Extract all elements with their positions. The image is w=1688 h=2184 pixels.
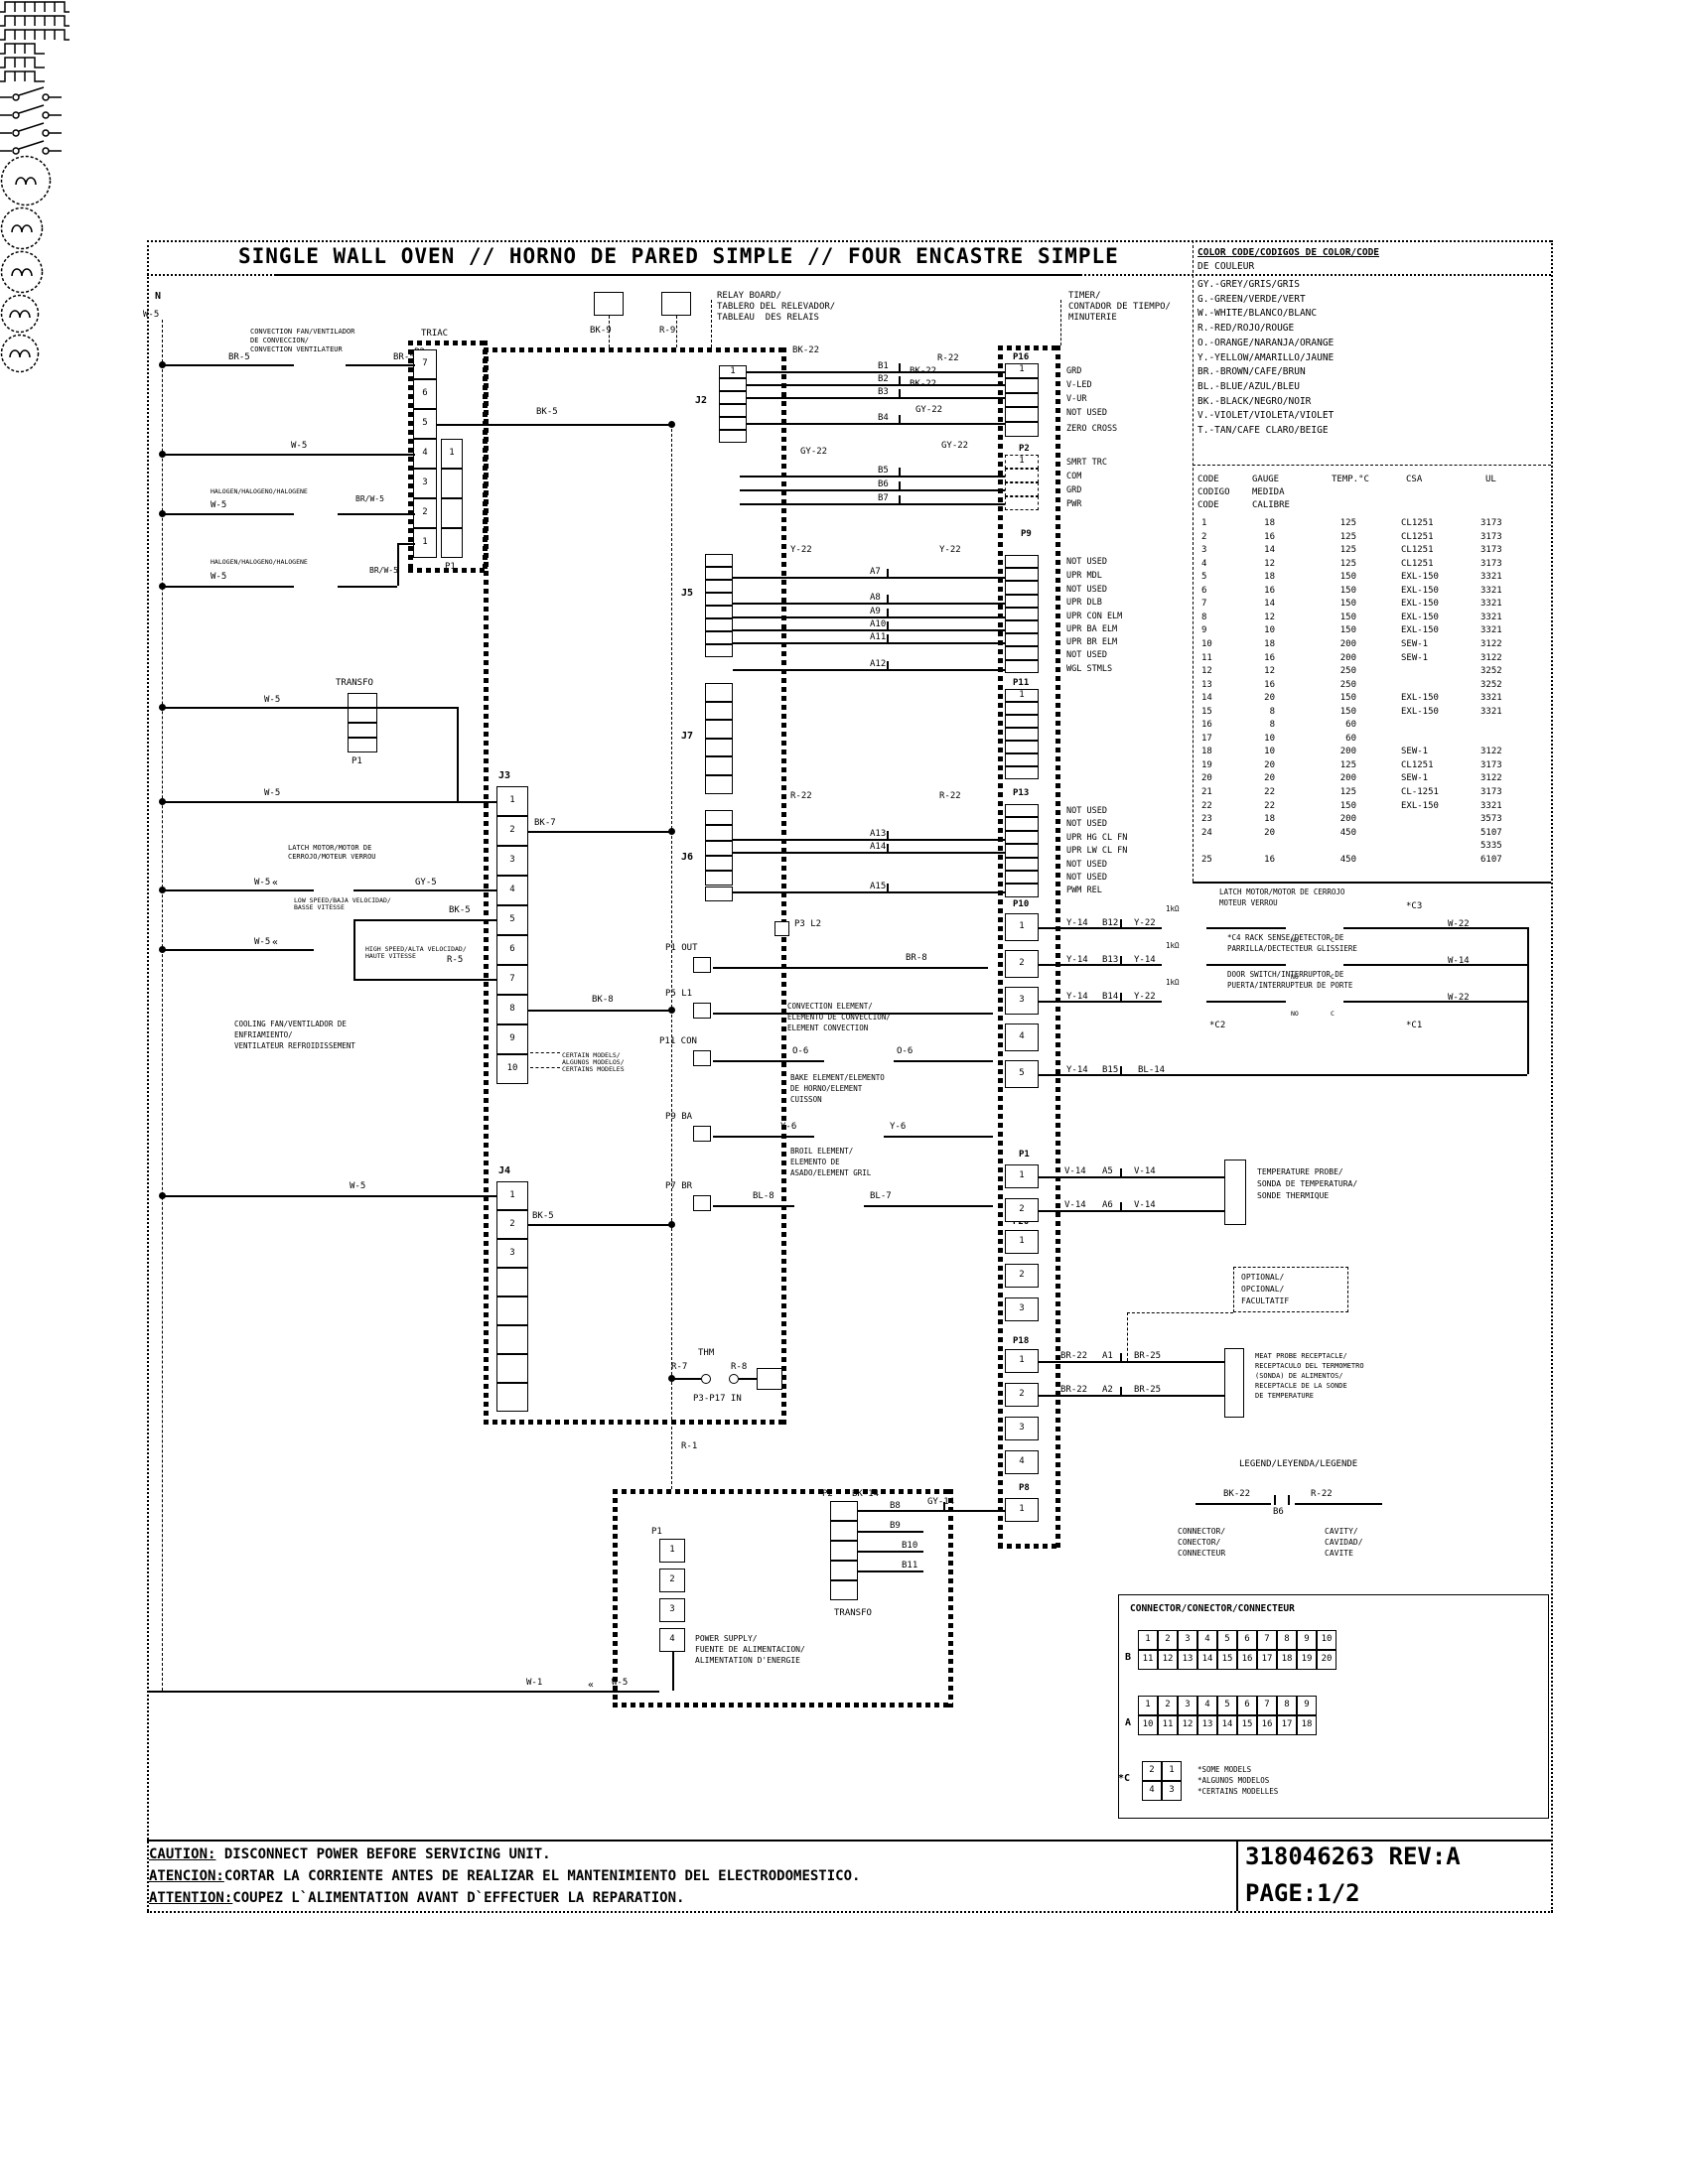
wire [858, 1531, 923, 1533]
label-a9: A9 [870, 607, 881, 616]
label-r1: R-1 [681, 1441, 697, 1451]
connector-p9-cell [1005, 620, 1039, 633]
label-p11con: P11 CON [659, 1036, 697, 1046]
label-ch1: « [272, 878, 278, 889]
board-border [998, 345, 1003, 1549]
label-b9: B9 [890, 1521, 901, 1531]
gauge-cell: 2 [1201, 532, 1231, 542]
gauge-cell: 13 [1201, 680, 1231, 690]
junction-dot [668, 1375, 675, 1382]
label-broil3: ASADO/ELEMENT GRIL [790, 1169, 871, 1178]
wire [162, 320, 163, 1691]
cavity-tick [899, 481, 901, 490]
connector-p9-cell [1005, 568, 1039, 581]
outline-box [693, 1050, 711, 1066]
timer-p2-pin-label: GRD [1066, 486, 1081, 496]
cavity-tick [899, 389, 901, 398]
cavity-tick [943, 1502, 945, 1511]
label-bake3: CUISSON [790, 1096, 822, 1105]
label-cc1: C [1331, 937, 1335, 944]
connector-j6-cell [705, 810, 733, 825]
caution-text-es: CORTAR LA CORRIENTE ANTES DE REALIZAR EL… [224, 1868, 861, 1884]
gauge-cell: 16 [1249, 680, 1275, 690]
label-o6b: O-6 [897, 1046, 913, 1056]
wire [1206, 1001, 1286, 1003]
connector-p10-cell: 2 [1005, 950, 1039, 978]
timer-p9-pin-label: UPR BR ELM [1066, 638, 1117, 648]
connector-p18-cell: 4 [1005, 1450, 1039, 1474]
wire [739, 1378, 757, 1380]
connector-j4-cell: 3 [496, 1239, 528, 1268]
color-code-entry: R.-RED/ROJO/ROUGE [1197, 324, 1294, 335]
junction-dot [668, 1221, 675, 1228]
gauge-cell: 150 [1321, 707, 1356, 717]
connector-j5-cell [705, 554, 733, 567]
timer-p13-pin-label: UPR HG CL FN [1066, 834, 1127, 844]
gauge-cell: 3173 [1480, 760, 1520, 770]
label-pow1: POWER SUPPLY/ [695, 1634, 758, 1643]
grid-b1-cell: 4 [1197, 1630, 1217, 1650]
timer-p13-pin-label: NOT USED [1066, 874, 1107, 884]
gauge-header3: CALIBRE [1252, 500, 1290, 510]
cavity-tick [1120, 1387, 1122, 1396]
cavity-tick [887, 884, 889, 892]
connector-j3-cell: 1 [496, 786, 528, 816]
connector-p9-cell [1005, 581, 1039, 594]
wire [1343, 1001, 1527, 1003]
gauge-cell: 15 [1201, 707, 1231, 717]
gauge-cell: 200 [1321, 773, 1356, 783]
wire [397, 543, 399, 586]
connector-p11-cell: 1 [1005, 689, 1039, 702]
label-n: N [155, 291, 161, 303]
color-code-entry: Y.-YELLOW/AMARILLO/JAUNE [1197, 353, 1334, 364]
label-conv3: ELEMENT CONVECTION [787, 1024, 868, 1033]
label-latchm1: LATCH MOTOR/MOTOR DE CERROJO [1219, 888, 1344, 897]
grid-c-label: *C [1118, 1773, 1130, 1785]
grid-b1-cell: 8 [1277, 1630, 1297, 1650]
label-j7: J7 [681, 731, 693, 743]
grid-a2-cell: 14 [1217, 1715, 1237, 1735]
wire [162, 801, 496, 803]
timer-p2-pin-label: SMRT TRC [1066, 459, 1107, 469]
label-timer1: TIMER/ [1068, 291, 1101, 301]
connector-j4-cell [496, 1383, 528, 1412]
border-line [1193, 240, 1194, 882]
connector-p16-cell: 1 [1005, 363, 1039, 378]
connector-p10-cell: 5 [1005, 1060, 1039, 1088]
gauge-cell: CL1251 [1401, 559, 1465, 569]
wire [733, 629, 1005, 631]
label-b1: B1 [878, 361, 889, 371]
label-p16: P16 [1013, 352, 1029, 362]
timer-p9-pin-label: NOT USED [1066, 558, 1107, 568]
color-code-entry: T.-TAN/CAFE CLARO/BEIGE [1197, 426, 1329, 437]
connector-triac-cell: 5 [413, 409, 437, 439]
gauge-cell: 3321 [1480, 693, 1520, 703]
timer-p9-pin-label: WGL STMLS [1066, 665, 1112, 675]
gauge-cell: 6107 [1480, 855, 1520, 865]
gauge-cell: CL1251 [1401, 760, 1465, 770]
caution-word-en: CAUTION: [149, 1846, 215, 1862]
connector-j3-cell: 5 [496, 905, 528, 935]
cavity-tick [1120, 1066, 1122, 1075]
connector-p9-cell [1005, 660, 1039, 673]
gauge-cell: 12 [1249, 559, 1275, 569]
connector-p13-cell [1005, 858, 1039, 871]
cavity-tick [899, 495, 901, 504]
gauge-cell: 3173 [1480, 545, 1520, 555]
junction-dot [159, 1192, 166, 1199]
wire [162, 1195, 496, 1197]
grid-b2-cell: 16 [1237, 1650, 1257, 1670]
connector-transfo-cell [348, 693, 377, 708]
wire [1060, 300, 1061, 345]
connector-p9-cell [1005, 555, 1039, 568]
border-line [147, 1840, 1551, 1842]
timer-p9-pin-label: UPR BA ELM [1066, 625, 1117, 635]
wire [162, 364, 294, 366]
wire [858, 1551, 923, 1553]
label-brw5_1: BR/W-5 [355, 494, 384, 503]
gauge-cell: 8 [1201, 613, 1231, 622]
gauge-cell: 150 [1321, 613, 1356, 622]
gauge-cell: 18 [1249, 572, 1275, 582]
label-bk8: BK-8 [592, 995, 614, 1005]
connector-j6-cell [705, 825, 733, 840]
wire [733, 669, 1005, 671]
wire [1343, 964, 1527, 966]
label-p3p17: P3-P17 IN [693, 1394, 742, 1404]
grid-a1-cell: 8 [1277, 1696, 1297, 1715]
label-ps_p1: P1 [651, 1527, 662, 1537]
border-line [1236, 1840, 1238, 1911]
gauge-cell: 22 [1249, 801, 1275, 811]
label-cert3: CERTAINS MODELES [562, 1066, 625, 1073]
wire [733, 603, 1005, 605]
wire [338, 586, 397, 588]
gauge-cell: 4 [1201, 559, 1231, 569]
grid-c1-cell: 1 [1162, 1761, 1182, 1781]
label-bk7: BK-7 [534, 818, 556, 828]
label-gy22_r: GY-22 [941, 441, 968, 451]
wire [864, 1205, 993, 1207]
gauge-cell: 3321 [1480, 586, 1520, 596]
label-o6a: O-6 [792, 1046, 808, 1056]
wire [1039, 1210, 1224, 1212]
grid-b-label: B [1125, 1652, 1131, 1664]
label-r8: R-8 [731, 1362, 747, 1372]
label-b6_leg: B6 [1273, 1507, 1284, 1517]
timer-p9-pin-label: UPR DLB [1066, 599, 1102, 609]
gauge-cell: 14 [1201, 693, 1231, 703]
gauge-cell: 12 [1249, 613, 1275, 622]
cavity-tick [1120, 1353, 1122, 1362]
border-line [147, 1911, 1553, 1913]
timer-p13-pin-label: NOT USED [1066, 820, 1107, 830]
gauge-cell: EXL-150 [1401, 599, 1465, 609]
label-r22_b1: R-22 [937, 353, 959, 363]
wire [1343, 927, 1527, 929]
gauge-cell: 20 [1249, 828, 1275, 838]
label-transfo_p1: P1 [352, 756, 362, 766]
wire [1196, 1503, 1271, 1505]
grid-b1-cell: 7 [1257, 1630, 1277, 1650]
grid-c1-cell: 2 [1142, 1761, 1162, 1781]
resistor-icon [0, 69, 45, 83]
label-p9: P9 [1021, 529, 1032, 539]
label-r22_l: R-22 [790, 791, 812, 801]
gauge-cell: 16 [1249, 586, 1275, 596]
gauge-cell: 150 [1321, 599, 1356, 609]
connector-triac-cell: 1 [413, 528, 437, 558]
gauge-cell: 250 [1321, 680, 1356, 690]
resistor-icon [0, 28, 70, 42]
wire [711, 300, 712, 347]
label-b5: B5 [878, 466, 889, 476]
connector-j4-cell [496, 1354, 528, 1383]
label-timer2: CONTADOR DE TIEMPO/ [1068, 302, 1171, 312]
wire [1206, 964, 1286, 966]
gauge-cell: 3252 [1480, 666, 1520, 676]
label-bl7: BL-7 [870, 1191, 892, 1201]
board-border [484, 1420, 786, 1425]
gauge-cell: 125 [1321, 518, 1356, 528]
cavity-tick [887, 634, 889, 643]
motor-icon [0, 294, 40, 334]
label-a12: A12 [870, 659, 886, 669]
gauge-cell: CL1251 [1401, 532, 1465, 542]
gauge-cell: 200 [1321, 639, 1356, 649]
gauge-cell: 24 [1201, 828, 1231, 838]
outline-box [594, 292, 624, 316]
wire [162, 949, 314, 951]
outline-box [774, 921, 789, 936]
cavity-tick [887, 621, 889, 630]
timer-p2-pin-label: COM [1066, 473, 1081, 482]
label-hal2: HALOGEN/HALOGENO/HALOGENE [211, 559, 308, 566]
gauge-cell: 3321 [1480, 572, 1520, 582]
gauge-cell: 16 [1201, 720, 1231, 730]
connector-j4-cell [496, 1268, 528, 1297]
wire [713, 1060, 824, 1062]
grid-a1-cell: 9 [1297, 1696, 1317, 1715]
label-a2: A2 [1102, 1385, 1113, 1395]
label-j5: J5 [681, 588, 693, 600]
board-border [408, 341, 488, 345]
gauge-cell: 18 [1249, 814, 1275, 824]
label-y22_r: Y-22 [939, 545, 961, 555]
label-bk5_top: BK-5 [536, 407, 558, 417]
label-w1: W-1 [526, 1678, 542, 1688]
connector-p11-cell [1005, 728, 1039, 741]
grid-a2-cell: 13 [1197, 1715, 1217, 1735]
label-c2: *C2 [1209, 1021, 1225, 1030]
connector-j5-cell [705, 606, 733, 618]
timer-p16-pin-label: GRD [1066, 367, 1081, 377]
gauge-header3: CODE [1197, 500, 1219, 510]
connector-triac_inner-cell [441, 498, 463, 528]
grid-a2-cell: 10 [1138, 1715, 1158, 1735]
resistor-icon [0, 0, 70, 14]
switch-icon [0, 83, 62, 101]
gauge-cell: EXL-150 [1401, 625, 1465, 635]
cavity-tick [899, 468, 901, 477]
grid-a1-cell: 1 [1138, 1696, 1158, 1715]
label-cool3: VENTILATEUR REFROIDISSEMENT [234, 1042, 355, 1051]
gauge-cell: 3122 [1480, 773, 1520, 783]
gauge-cell: 12 [1201, 666, 1231, 676]
connector-p9-cell [1005, 608, 1039, 620]
label-j3: J3 [498, 770, 510, 782]
label-no2: NO [1291, 974, 1299, 981]
outline-box [1233, 1267, 1348, 1312]
connector-transfo-cell [348, 708, 377, 723]
connector-j6-cell [705, 871, 733, 886]
caution-line-fr: ATTENTION:COUPEZ L`ALIMENTATION AVANT D`… [149, 1890, 684, 1906]
gauge-header: GAUGE [1252, 475, 1279, 484]
board-border [948, 1489, 953, 1707]
gauge-cell: 3321 [1480, 707, 1520, 717]
part-number: 318046263 REV:A [1245, 1843, 1461, 1870]
wire [353, 919, 355, 979]
label-bk22_leg: BK-22 [1223, 1489, 1250, 1499]
switch-icon [0, 119, 62, 137]
wire [338, 513, 415, 515]
junction-dot [668, 421, 675, 428]
label-bake2: DE HORNO/ELEMENT [790, 1085, 862, 1094]
gauge-cell: 60 [1321, 734, 1356, 744]
connector-ps_transfo-cell [830, 1501, 858, 1521]
connector-j3-cell: 2 [496, 816, 528, 846]
label-convfan2: DE CONVECCION/ [250, 337, 309, 344]
label-b10: B10 [902, 1541, 917, 1551]
gauge-cell: SEW-1 [1401, 639, 1465, 649]
grid-b2-cell: 19 [1297, 1650, 1317, 1670]
label-p18: P18 [1013, 1336, 1029, 1346]
wire [530, 1052, 560, 1053]
board-border [613, 1489, 953, 1494]
gauge-cell: 450 [1321, 855, 1356, 865]
connector-j6-cell [705, 856, 733, 871]
border-line [1193, 882, 1551, 884]
label-conn2: CONECTOR/ [1178, 1538, 1220, 1547]
connector-j4-cell [496, 1325, 528, 1354]
label-br22a: BR-22 [1060, 1351, 1087, 1361]
label-p7br: P7 BR [665, 1181, 692, 1191]
gauge-cell: 10 [1249, 734, 1275, 744]
connector-j3-cell: 8 [496, 995, 528, 1024]
connector-j4-cell: 1 [496, 1181, 528, 1210]
cavity-tick [887, 844, 889, 853]
label-convfan3: CONVECTION VENTILATEUR [250, 345, 343, 353]
gauge-header2: MEDIDA [1252, 487, 1285, 497]
grid-a1-cell: 5 [1217, 1696, 1237, 1715]
color-code-title: COLOR CODE/CODIGOS DE COLOR/CODE [1197, 248, 1379, 259]
gauge-header: CSA [1406, 475, 1422, 484]
label-br22b: BR-22 [1060, 1385, 1087, 1395]
wire [1039, 1395, 1224, 1397]
wire [353, 919, 496, 921]
gauge-cell: 20 [1249, 693, 1275, 703]
label-latch2: CERROJO/MOTEUR VERROU [288, 853, 376, 861]
label-a11: A11 [870, 632, 886, 642]
connector-j4-cell: 2 [496, 1210, 528, 1239]
gauge-cell: EXL-150 [1401, 586, 1465, 596]
gauge-cell: 150 [1321, 572, 1356, 582]
wire [733, 616, 1005, 618]
gauge-cell: 250 [1321, 666, 1356, 676]
diagram-content: NW-5CONVECTION FAN/VENTILADORDE CONVECCI… [0, 0, 1688, 373]
gauge-cell: 150 [1321, 801, 1356, 811]
label-p8: P8 [1019, 1483, 1030, 1493]
label-meat2: RECEPTACULO DEL TERMOMETRO [1255, 1362, 1364, 1370]
wire [162, 513, 294, 515]
grid-a2-cell: 18 [1297, 1715, 1317, 1735]
color-code-entry: BL.-BLUE/AZUL/BLEU [1197, 382, 1300, 393]
color-code-entry: GY.-GREY/GRIS/GRIS [1197, 280, 1300, 291]
connector-j5-cell [705, 567, 733, 580]
connector-triac-cell: 7 [413, 349, 437, 379]
label-k2: 1kΩ [1166, 942, 1180, 951]
timer-p16-pin-label: NOT USED [1066, 409, 1107, 419]
grid-b2-cell: 18 [1277, 1650, 1297, 1670]
label-v14d: V-14 [1134, 1200, 1156, 1210]
grid-c2-cell: 4 [1142, 1781, 1162, 1801]
label-j4: J4 [498, 1165, 510, 1177]
connector-ps_transfo-cell [830, 1580, 858, 1600]
junction-dot [159, 451, 166, 458]
timer-p16-pin-label: V-LED [1066, 381, 1092, 391]
label-bl8: BL-8 [753, 1191, 774, 1201]
gauge-cell: 125 [1321, 559, 1356, 569]
label-p5l1: P5 L1 [665, 989, 692, 999]
gauge-cell: 150 [1321, 693, 1356, 703]
gauge-cell: 150 [1321, 586, 1356, 596]
label-b3: B3 [878, 387, 889, 397]
connector-j2-cell [719, 378, 747, 391]
label-bk22_l: BK-22 [792, 345, 819, 355]
gauge-cell: 10 [1201, 639, 1231, 649]
wire [1295, 1503, 1382, 1505]
wire [528, 831, 671, 833]
connector-p20-cell: 1 [1005, 1230, 1039, 1254]
label-c1: *C1 [1406, 1021, 1422, 1030]
grid-b1-cell: 6 [1237, 1630, 1257, 1650]
wire [713, 1136, 814, 1138]
connector-p13-cell [1005, 817, 1039, 830]
label-convfan1: CONVECTION FAN/VENTILADOR [250, 328, 354, 336]
border-line [276, 274, 1080, 276]
grid-b2-cell: 12 [1158, 1650, 1178, 1670]
label-broil2: ELEMENTO DE [790, 1159, 840, 1167]
connector-p1-cell: 1 [1005, 1164, 1039, 1188]
label-b6: B6 [878, 479, 889, 489]
label-tprobe1: TEMPERATURE PROBE/ [1257, 1167, 1343, 1176]
wire [530, 1067, 560, 1068]
timer-p13-pin-label: NOT USED [1066, 861, 1107, 871]
label-b4: B4 [878, 413, 889, 423]
connector-p10-cell: 1 [1005, 913, 1039, 941]
connector-j7-cell [705, 702, 733, 721]
connector-p11-cell [1005, 715, 1039, 728]
gauge-header: TEMP.°C [1332, 475, 1369, 484]
label-relay2: TABLERO DEL RELEVADOR/ [717, 302, 835, 312]
timer-p9-pin-label: NOT USED [1066, 651, 1107, 661]
gauge-cell: 7 [1201, 599, 1231, 609]
label-no3: NO [1291, 1011, 1299, 1018]
grid-b1-cell: 2 [1158, 1630, 1178, 1650]
